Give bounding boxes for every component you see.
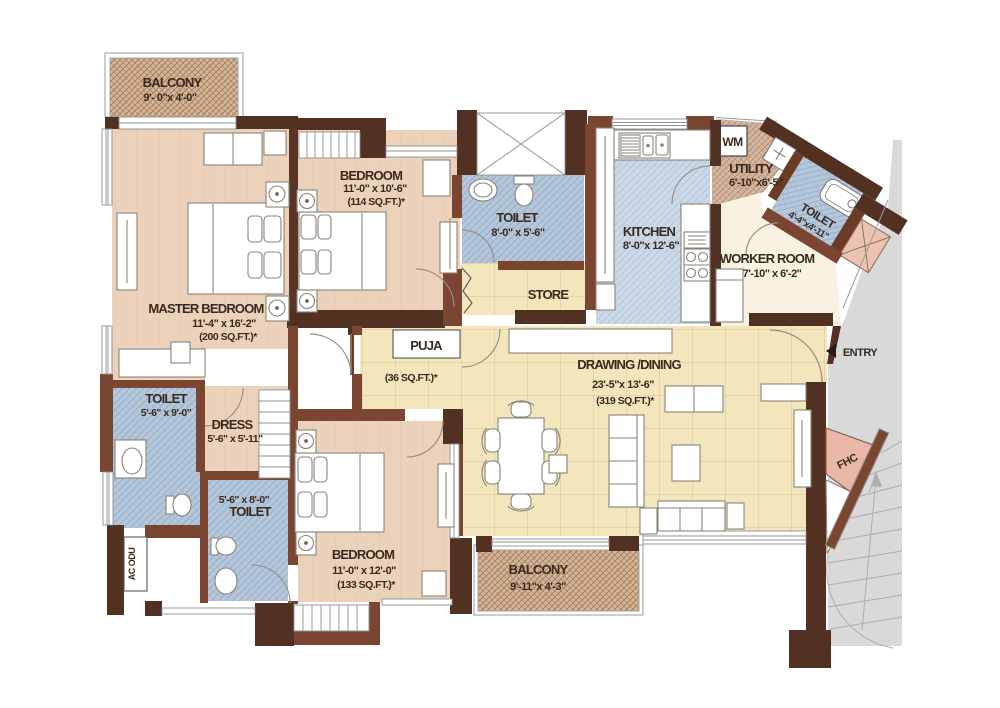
svg-text:5'-6" x 5'-11": 5'-6" x 5'-11" [207,433,263,445]
svg-text:7'-10" x 6'-2": 7'-10" x 6'-2" [743,268,802,280]
svg-text:8'-0"x 12'-6": 8'-0"x 12'-6" [623,240,680,252]
svg-text:WM: WM [722,135,743,149]
svg-text:PUJA: PUJA [410,338,443,353]
svg-text:23'-5"x 13'-6": 23'-5"x 13'-6" [592,379,654,391]
svg-text:6'-10"x6'-5": 6'-10"x6'-5" [729,177,783,189]
svg-text:BALCONY: BALCONY [143,75,203,90]
svg-text:8'-0" x 5'-6": 8'-0" x 5'-6" [491,227,544,239]
svg-text:(200 SQ.FT.)*: (200 SQ.FT.)* [199,331,258,343]
svg-text:5'-6" x 9'-0": 5'-6" x 9'-0" [141,407,192,419]
svg-text:9'-11"x 4'-3": 9'-11"x 4'-3" [510,581,566,593]
svg-text:DRESS: DRESS [212,417,254,432]
svg-text:UTILITY: UTILITY [729,161,774,176]
svg-text:MASTER BEDROOM: MASTER BEDROOM [148,301,263,316]
svg-text:AC ODU: AC ODU [127,548,137,581]
svg-text:BEDROOM: BEDROOM [332,547,394,562]
svg-text:BEDROOM: BEDROOM [340,168,402,183]
svg-text:WORKER ROOM: WORKER ROOM [720,251,814,266]
svg-text:11'-0" x 12'-0": 11'-0" x 12'-0" [332,565,396,577]
svg-text:DRAWING /DINING: DRAWING /DINING [577,357,681,372]
svg-text:(319 SQ.FT.)*: (319 SQ.FT.)* [596,395,655,407]
svg-text:9'- 0"x 4'-0": 9'- 0"x 4'-0" [143,92,196,104]
svg-text:11'-0" x 10'-6": 11'-0" x 10'-6" [343,183,407,195]
svg-text:11'-4" x 16'-2": 11'-4" x 16'-2" [192,318,256,330]
svg-text:ENTRY: ENTRY [843,347,879,359]
svg-text:KITCHEN: KITCHEN [623,224,676,239]
svg-text:TOILET: TOILET [145,391,187,406]
svg-text:STORE: STORE [528,287,570,302]
svg-text:(133 SQ.FT.)*: (133 SQ.FT.)* [337,579,396,591]
svg-text:TOILET: TOILET [496,210,538,225]
svg-text:(36 SQ.FT.)*: (36 SQ.FT.)* [385,372,439,384]
svg-text:BALCONY: BALCONY [509,562,569,577]
svg-text:TOILET: TOILET [229,504,271,519]
svg-text:(114 SQ.FT.)*: (114 SQ.FT.)* [347,196,406,208]
